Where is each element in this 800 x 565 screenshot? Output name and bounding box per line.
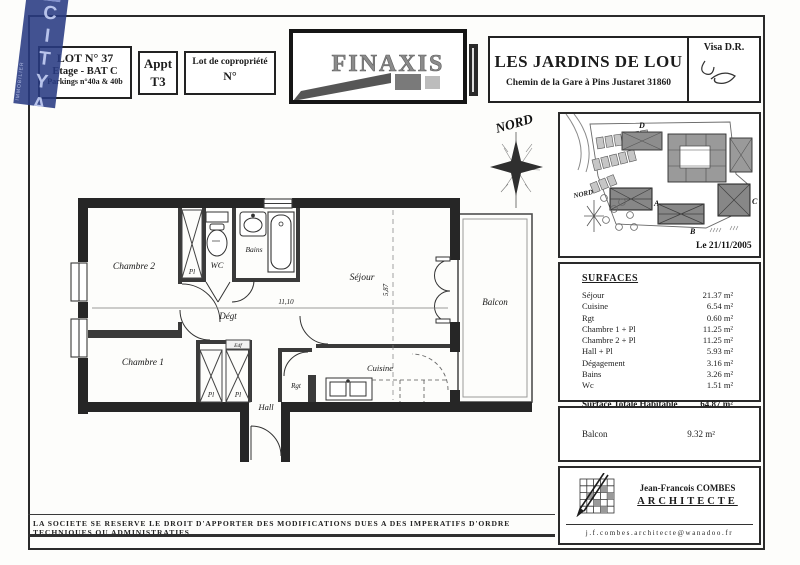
architect-logo-icon — [574, 473, 616, 517]
binder-tab — [469, 44, 478, 96]
site-map: D A B C — [560, 114, 759, 256]
row-value: 3.16 m² — [707, 358, 733, 369]
finaxis-wordmark: FINAXIS — [332, 51, 445, 77]
row-label: Dégagement — [582, 358, 625, 369]
row-label: Rgt — [582, 313, 594, 324]
row-value: 0.60 m² — [707, 313, 733, 324]
project-title: LES JARDINS DE LOU — [494, 52, 682, 72]
finaxis-shape-parallelogram — [293, 73, 391, 100]
title-block: LES JARDINS DE LOU Chemin de la Gare à P… — [488, 36, 761, 103]
finaxis-shape-square-light — [425, 76, 440, 89]
appt-label: Appt — [140, 55, 176, 73]
map-nord-label: NORD — [572, 188, 594, 200]
road-line-2 — [574, 114, 589, 172]
architect-title: ARCHITECTE — [616, 496, 759, 507]
table-row: Séjour21.37 m² — [560, 290, 759, 301]
appt-type: T3 — [140, 73, 176, 91]
building-c-label: C — [752, 197, 758, 206]
footer-rule-bottom — [28, 534, 555, 537]
balcon-surface-box: Balcon 9.32 m² — [558, 406, 761, 462]
row-value: 11.25 m² — [703, 324, 733, 335]
signature-icon — [695, 53, 753, 91]
footer-rule-top — [28, 514, 555, 515]
project-address: Chemin de la Gare à Pins Justaret 31860 — [506, 78, 671, 88]
grass-hatch — [710, 226, 738, 232]
row-label: Bains — [582, 369, 601, 380]
table-row: Dégagement3.16 m² — [560, 358, 759, 369]
finaxis-logo-box: FINAXIS — [289, 29, 467, 104]
architect-top: Jean-Francois COMBES ARCHITECTE — [560, 468, 759, 522]
copro-label: Lot de copropriété — [186, 57, 274, 67]
balcon-value: 9.32 m² — [687, 429, 715, 439]
surfaces-table: SURFACES Séjour21.37 m² Cuisine6.54 m² R… — [558, 262, 761, 402]
architect-divider — [566, 524, 753, 525]
copro-number: N° — [186, 69, 274, 84]
visa-cell: Visa D.R. — [687, 38, 759, 101]
finaxis-shape-square-dark — [395, 74, 421, 90]
row-label: Hall + Pl — [582, 346, 613, 357]
row-label: Séjour — [582, 290, 604, 301]
building-d-block: D — [622, 121, 662, 150]
road-line — [566, 114, 581, 170]
map-compass-icon — [584, 200, 604, 232]
row-value: 3.26 m² — [707, 369, 733, 380]
row-label: Cuisine — [582, 301, 608, 312]
architect-name: Jean-Francois COMBES — [616, 483, 759, 493]
building-b: B — [658, 204, 704, 236]
table-row: Wc1.51 m² — [560, 380, 759, 391]
table-row: Rgt0.60 m² — [560, 313, 759, 324]
title-main: LES JARDINS DE LOU Chemin de la Gare à P… — [490, 38, 687, 101]
watermark-letters: CITYA — [27, 2, 61, 109]
building-complex — [668, 134, 752, 182]
building-d-label: D — [638, 121, 645, 130]
table-row: Chambre 2 + Pl11.25 m² — [560, 335, 759, 346]
table-row: Bains3.26 m² — [560, 369, 759, 380]
table-row: Cuisine6.54 m² — [560, 301, 759, 312]
row-value: 11.25 m² — [703, 335, 733, 346]
building-b-label: B — [689, 227, 696, 236]
finaxis-logo: FINAXIS — [293, 33, 463, 100]
houses-row-2 — [592, 150, 636, 171]
balcon-label: Balcon — [582, 429, 608, 439]
site-map-box: D A B C — [558, 112, 761, 258]
floor-plan-sheet: LOT N° 37 Etage - BAT C Parkings n°40a &… — [0, 0, 800, 565]
architect-email: j.f.combes.architecte@wanadoo.fr — [560, 529, 759, 537]
building-a: A — [610, 188, 660, 210]
row-value: 5.93 m² — [707, 346, 733, 357]
visa-label: Visa D.R. — [689, 42, 759, 53]
row-label: Chambre 1 + Pl — [582, 324, 636, 335]
row-label: Chambre 2 + Pl — [582, 335, 636, 346]
copropriete-box: Lot de copropriété N° — [184, 51, 276, 95]
map-date: Le 21/11/2005 — [696, 241, 752, 251]
appt-box: Appt T3 — [138, 51, 178, 95]
surfaces-title: SURFACES — [582, 273, 759, 284]
row-value: 21.37 m² — [703, 290, 733, 301]
building-c: C — [718, 184, 758, 216]
architect-box: Jean-Francois COMBES ARCHITECTE j.f.comb… — [558, 466, 761, 545]
table-row: Chambre 1 + Pl11.25 m² — [560, 324, 759, 335]
row-value: 1.51 m² — [707, 380, 733, 391]
architect-names: Jean-Francois COMBES ARCHITECTE — [616, 483, 759, 507]
table-row: Hall + Pl5.93 m² — [560, 346, 759, 357]
row-value: 6.54 m² — [707, 301, 733, 312]
row-label: Wc — [582, 380, 594, 391]
